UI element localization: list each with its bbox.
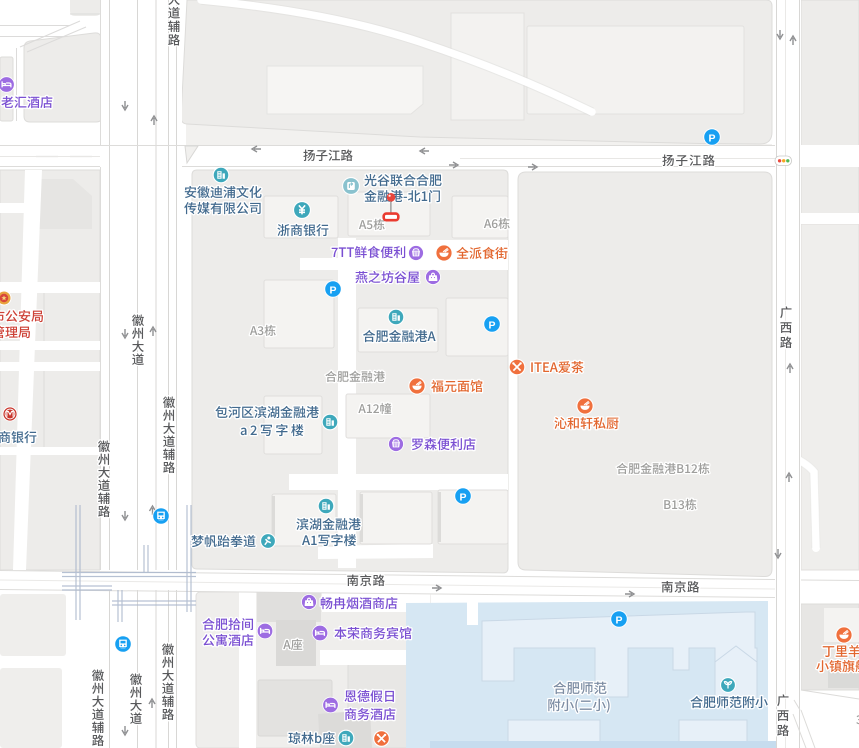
svg-text:徽州大道辅路: 徽州大道辅路	[163, 392, 176, 476]
svg-text:商务酒店: 商务酒店	[344, 704, 396, 723]
svg-text:徽州大道: 徽州大道	[130, 669, 143, 727]
svg-text:合肥师范附小: 合肥师范附小	[690, 692, 768, 711]
svg-text:金融港-北1门: 金融港-北1门	[364, 186, 441, 205]
svg-text:南京路: 南京路	[346, 570, 385, 589]
svg-text:广西路: 广西路	[777, 690, 790, 739]
svg-text:A3栋: A3栋	[250, 322, 276, 339]
svg-text:公寓酒店: 公寓酒店	[202, 630, 254, 649]
svg-text:徽州大道辅路: 徽州大道辅路	[98, 436, 111, 520]
svg-text:福元面馆: 福元面馆	[431, 376, 483, 395]
svg-text:附小(二小): 附小(二小)	[547, 694, 611, 714]
svg-text:徽州大道辅路: 徽州大道辅路	[162, 639, 175, 723]
svg-text:7TT鲜食便利: 7TT鲜食便利	[331, 242, 406, 261]
svg-text:罗森便利店: 罗森便利店	[411, 434, 476, 453]
svg-text:大道辅路: 大道辅路	[168, 0, 181, 49]
svg-text:小镇旗舰: 小镇旗舰	[816, 656, 859, 675]
svg-text:沁和轩私厨: 沁和轩私厨	[554, 413, 619, 432]
svg-text:商银行: 商银行	[0, 427, 37, 446]
svg-text:ITEA爱茶: ITEA爱茶	[530, 357, 584, 376]
svg-text:A5栋: A5栋	[359, 216, 385, 233]
svg-text:畅冉烟酒商店: 畅冉烟酒商店	[320, 593, 398, 612]
svg-text:传媒有限公司: 传媒有限公司	[184, 198, 262, 217]
svg-text:合肥金融港B12栋: 合肥金融港B12栋	[616, 460, 710, 477]
svg-text:浙商银行: 浙商银行	[277, 220, 329, 239]
svg-text:扬子江路: 扬子江路	[662, 150, 716, 169]
svg-text:合肥金融港: 合肥金融港	[325, 368, 385, 385]
svg-text:合肥金融港A: 合肥金融港A	[362, 326, 436, 345]
svg-text:恩德假日: 恩德假日	[344, 686, 396, 705]
svg-text:A1写字楼: A1写字楼	[302, 530, 357, 549]
svg-text:徽州大道辅路: 徽州大道辅路	[92, 665, 105, 748]
svg-text:本荣商务宾馆: 本荣商务宾馆	[334, 623, 412, 642]
svg-text:包河区滨湖金融港: 包河区滨湖金融港	[215, 402, 319, 421]
svg-text:琼林b座: 琼林b座	[288, 728, 335, 747]
svg-text:a2写字楼: a2写字楼	[240, 420, 306, 439]
svg-text:A6栋: A6栋	[484, 215, 510, 232]
svg-text:A座: A座	[283, 636, 302, 653]
svg-text:梦帆跆拳道: 梦帆跆拳道	[191, 531, 256, 550]
svg-text:老汇酒店: 老汇酒店	[1, 92, 53, 111]
svg-text:扬子江路: 扬子江路	[303, 145, 354, 164]
svg-text:南京路: 南京路	[661, 577, 700, 596]
svg-text:A12幢: A12幢	[358, 400, 391, 417]
svg-text:全派食街: 全派食街	[456, 243, 508, 262]
svg-text:徽州大道: 徽州大道	[132, 310, 145, 368]
svg-text:燕之坊谷屋: 燕之坊谷屋	[355, 267, 420, 286]
svg-text:管理局: 管理局	[0, 322, 31, 341]
svg-text:广西路: 广西路	[780, 302, 793, 351]
svg-text:B13栋: B13栋	[663, 496, 697, 513]
